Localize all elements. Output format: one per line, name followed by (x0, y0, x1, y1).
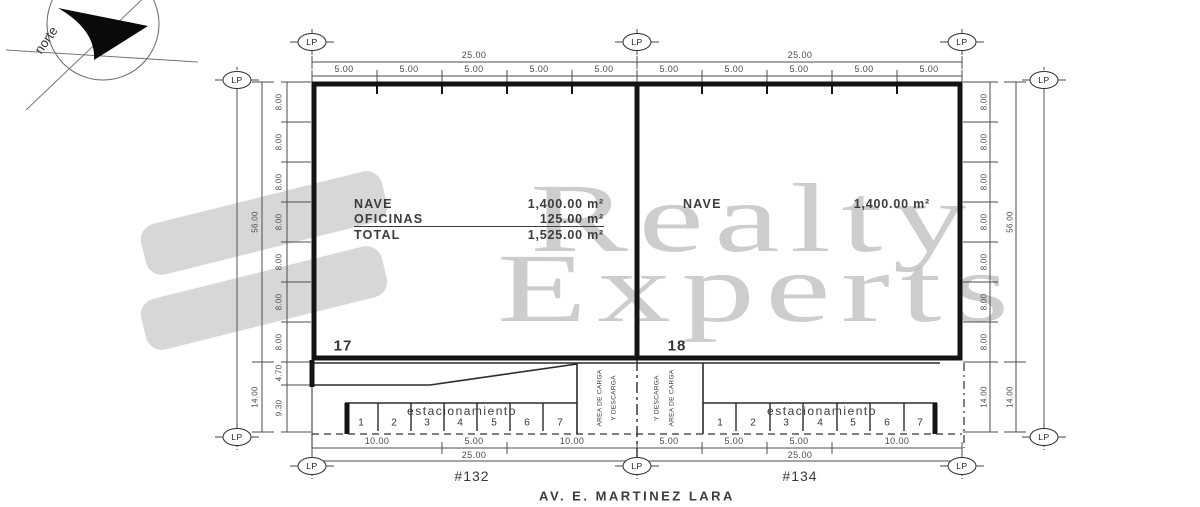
lp-marker: LP (298, 457, 327, 475)
dim-label: 10.00 (560, 436, 585, 446)
lp-marker-lines (215, 29, 1066, 479)
lot-number-left: #132 (454, 468, 489, 484)
area-label: NAVE (683, 197, 722, 211)
dim-label: 14.00 (1006, 386, 1015, 408)
lp-marker: LP (223, 428, 252, 446)
dim-label: 5.00 (789, 64, 808, 74)
unit-number-right: 18 (668, 338, 687, 355)
stall-number: 4 (817, 418, 823, 429)
dim-label: 5.00 (334, 64, 353, 74)
dim-label: 56.00 (251, 211, 260, 233)
dim-label: 5.00 (464, 64, 483, 74)
lp-marker: LP (623, 457, 652, 475)
stall-number: 4 (457, 418, 463, 429)
dim-label: 8.00 (275, 214, 284, 231)
linework-svg (0, 0, 1200, 507)
stall-number: 3 (783, 418, 789, 429)
dim-label: 14.00 (251, 386, 260, 408)
area-row: NAVE 1,400.00 m² (683, 196, 930, 211)
loading-area-label: Y DESCARGA (611, 375, 618, 421)
loading-area-label: AREA DE CARGA (669, 370, 676, 427)
loading-area-label: Y DESCARGA (654, 375, 661, 421)
lp-marker: LP (1030, 428, 1059, 446)
stall-number: 1 (358, 418, 364, 429)
area-label: TOTAL (354, 228, 401, 242)
property-boundary-lines (237, 80, 1044, 437)
north-arrow-icon (6, 0, 198, 110)
lp-marker: LP (623, 33, 652, 51)
dim-label: 8.00 (275, 334, 284, 351)
dim-label: 4.70 (275, 365, 284, 382)
area-table-right: NAVE 1,400.00 m² (683, 196, 930, 211)
dim-label: 8.00 (980, 214, 989, 231)
stall-number: 7 (557, 418, 563, 429)
area-row: TOTAL 1,525.00 m² (354, 227, 604, 242)
dim-label: 5.00 (594, 64, 613, 74)
dim-label: 5.00 (529, 64, 548, 74)
stall-number: 5 (491, 418, 497, 429)
stall-number: 6 (524, 418, 530, 429)
dim-label: 5.00 (919, 64, 938, 74)
dim-label: 5.00 (659, 436, 678, 446)
area-value: 1,400.00 m² (528, 197, 604, 211)
area-value: 1,400.00 m² (854, 197, 930, 211)
parking-label-left: estacionamiento (407, 404, 517, 418)
floor-plan: Realty Experts (0, 0, 1200, 507)
dim-label: 8.00 (275, 174, 284, 191)
stall-number: 2 (750, 418, 756, 429)
dim-label: 25.00 (788, 450, 813, 460)
dim-label: 8.00 (980, 254, 989, 271)
unit-number-left: 17 (334, 338, 353, 355)
dim-label: 25.00 (788, 50, 813, 60)
dim-label: 56.00 (1006, 211, 1015, 233)
dim-label: 8.00 (275, 254, 284, 271)
stall-number: 6 (884, 418, 890, 429)
area-row: OFICINAS 125.00 m² (354, 211, 604, 227)
lp-marker: LP (948, 33, 977, 51)
dim-label: 8.00 (275, 294, 284, 311)
dim-label: 10.00 (885, 436, 910, 446)
lp-marker: LP (223, 71, 252, 89)
dim-label: 8.00 (980, 94, 989, 111)
dim-label: 5.00 (399, 64, 418, 74)
dim-label: 5.00 (854, 64, 873, 74)
dim-label: 8.00 (980, 174, 989, 191)
dim-label: 10.00 (365, 436, 390, 446)
area-table-left: NAVE 1,400.00 m² OFICINAS 125.00 m² TOTA… (354, 196, 604, 242)
parking-label-right: estacionamiento (767, 404, 877, 418)
dim-label: 25.00 (462, 50, 487, 60)
dim-label: 8.00 (980, 294, 989, 311)
dim-label: 8.00 (275, 94, 284, 111)
dim-label: 5.00 (659, 64, 678, 74)
lp-marker: LP (948, 457, 977, 475)
lot-number-right: #134 (782, 468, 817, 484)
dim-label: 5.00 (724, 64, 743, 74)
street-name: AV. E. MARTINEZ LARA (539, 489, 735, 504)
area-value: 125.00 m² (540, 212, 604, 226)
dim-label: 5.00 (789, 436, 808, 446)
loading-area-label: AREA DE CARGA (597, 370, 604, 427)
dim-label: 14.00 (980, 386, 989, 408)
stall-number: 2 (391, 418, 397, 429)
dim-label: 8.00 (980, 134, 989, 151)
dim-label: 5.00 (464, 436, 483, 446)
lp-marker: LP (1030, 71, 1059, 89)
stall-number: 5 (850, 418, 856, 429)
dim-label: 8.00 (980, 334, 989, 351)
area-label: NAVE (354, 197, 393, 211)
stall-number: 3 (424, 418, 430, 429)
stall-number: 7 (917, 418, 923, 429)
dim-label: 9.30 (275, 400, 284, 417)
lp-marker: LP (298, 33, 327, 51)
area-label: OFICINAS (354, 212, 423, 226)
area-row: NAVE 1,400.00 m² (354, 196, 604, 211)
area-value: 1,525.00 m² (528, 228, 604, 242)
dim-label: 8.00 (275, 134, 284, 151)
stall-number: 1 (717, 418, 723, 429)
dim-label: 25.00 (462, 450, 487, 460)
dim-label: 5.00 (724, 436, 743, 446)
